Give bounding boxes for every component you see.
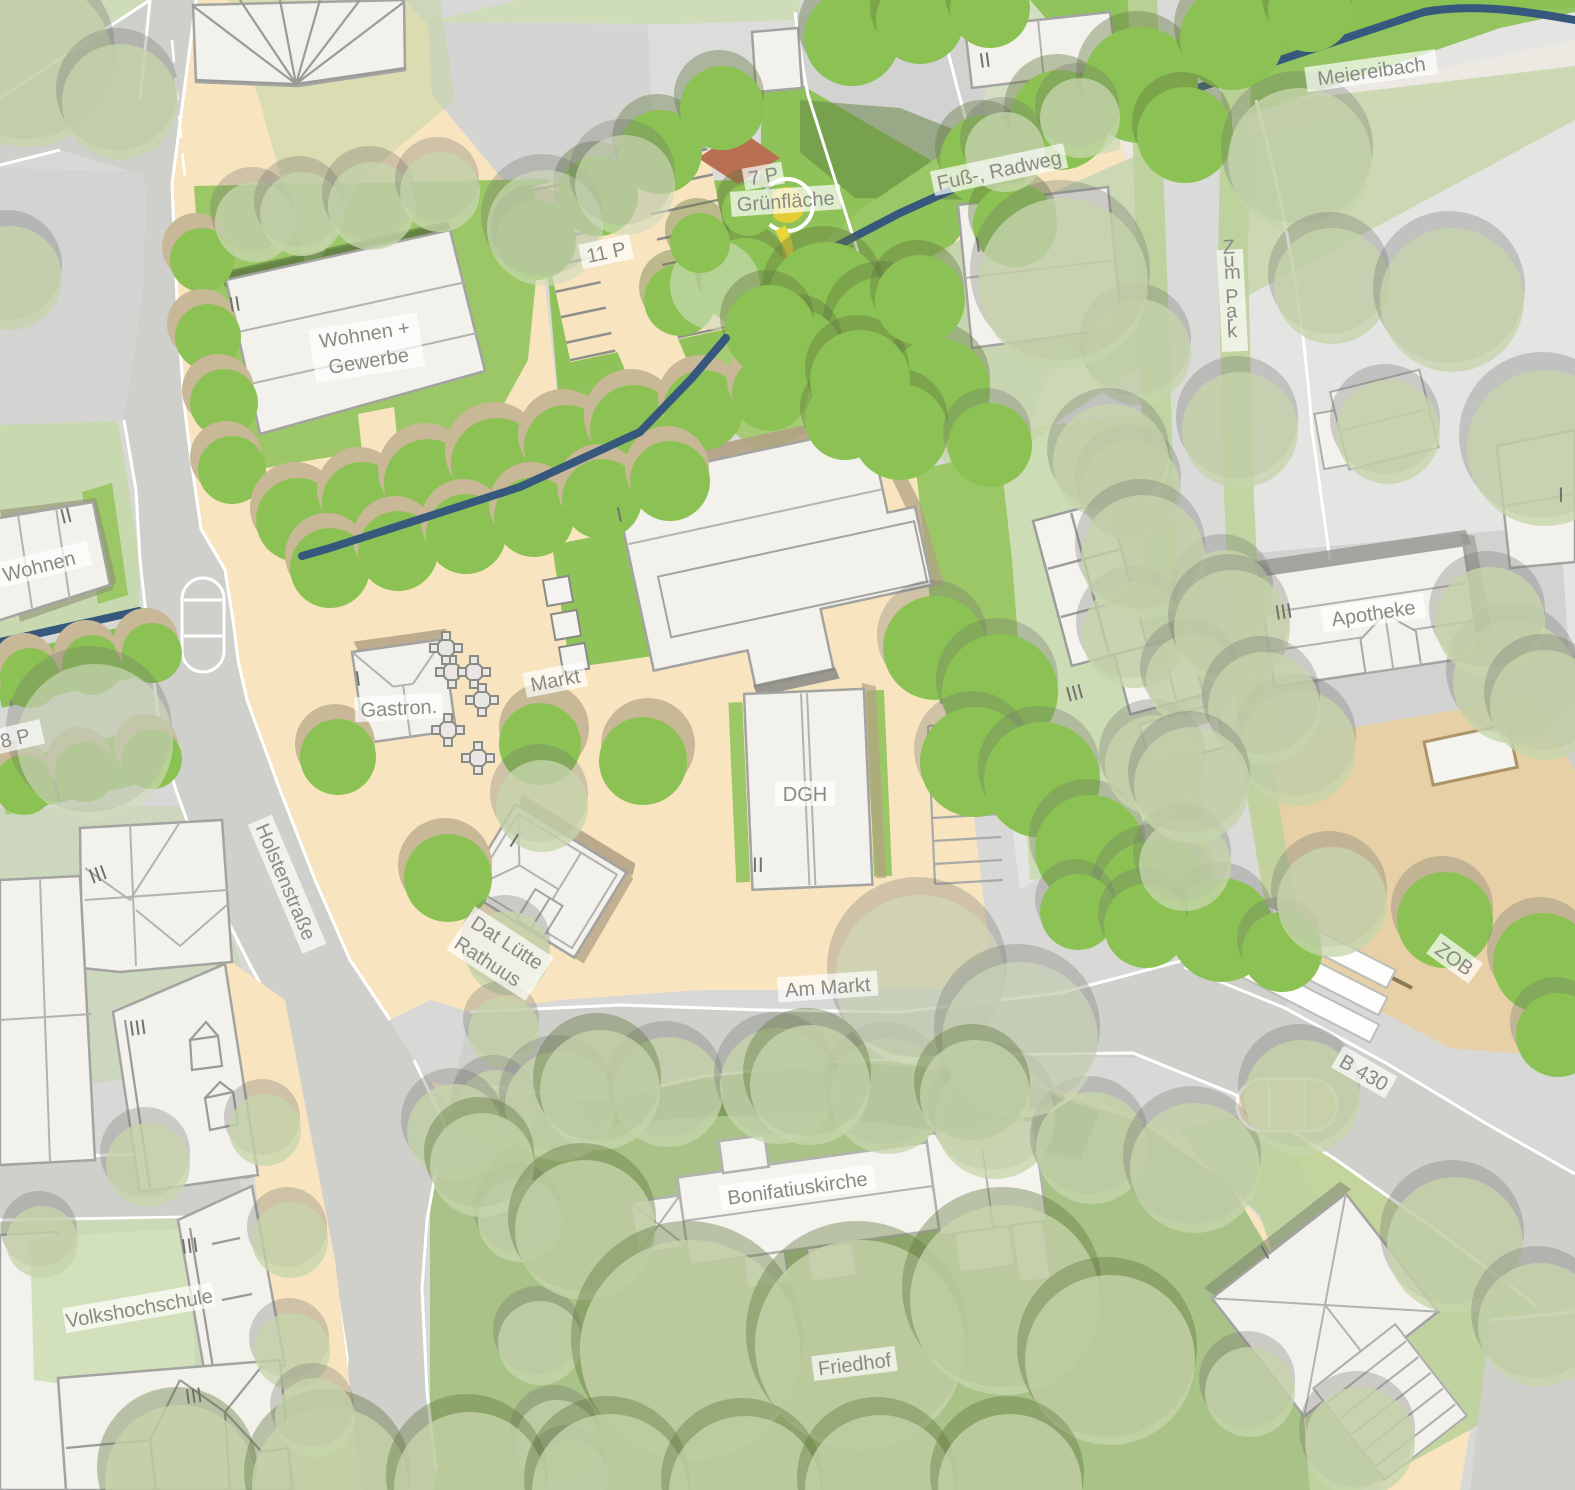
svg-text:III: III [183,1384,204,1409]
svg-text:II: II [752,854,764,877]
svg-text:III: III [1273,599,1294,624]
svg-text:III: III [127,1016,148,1041]
svg-text:DGH: DGH [783,784,827,806]
svg-text:Gastron.: Gastron. [360,696,438,722]
svg-text:III: III [179,1234,200,1259]
svg-text:I: I [1558,484,1564,507]
